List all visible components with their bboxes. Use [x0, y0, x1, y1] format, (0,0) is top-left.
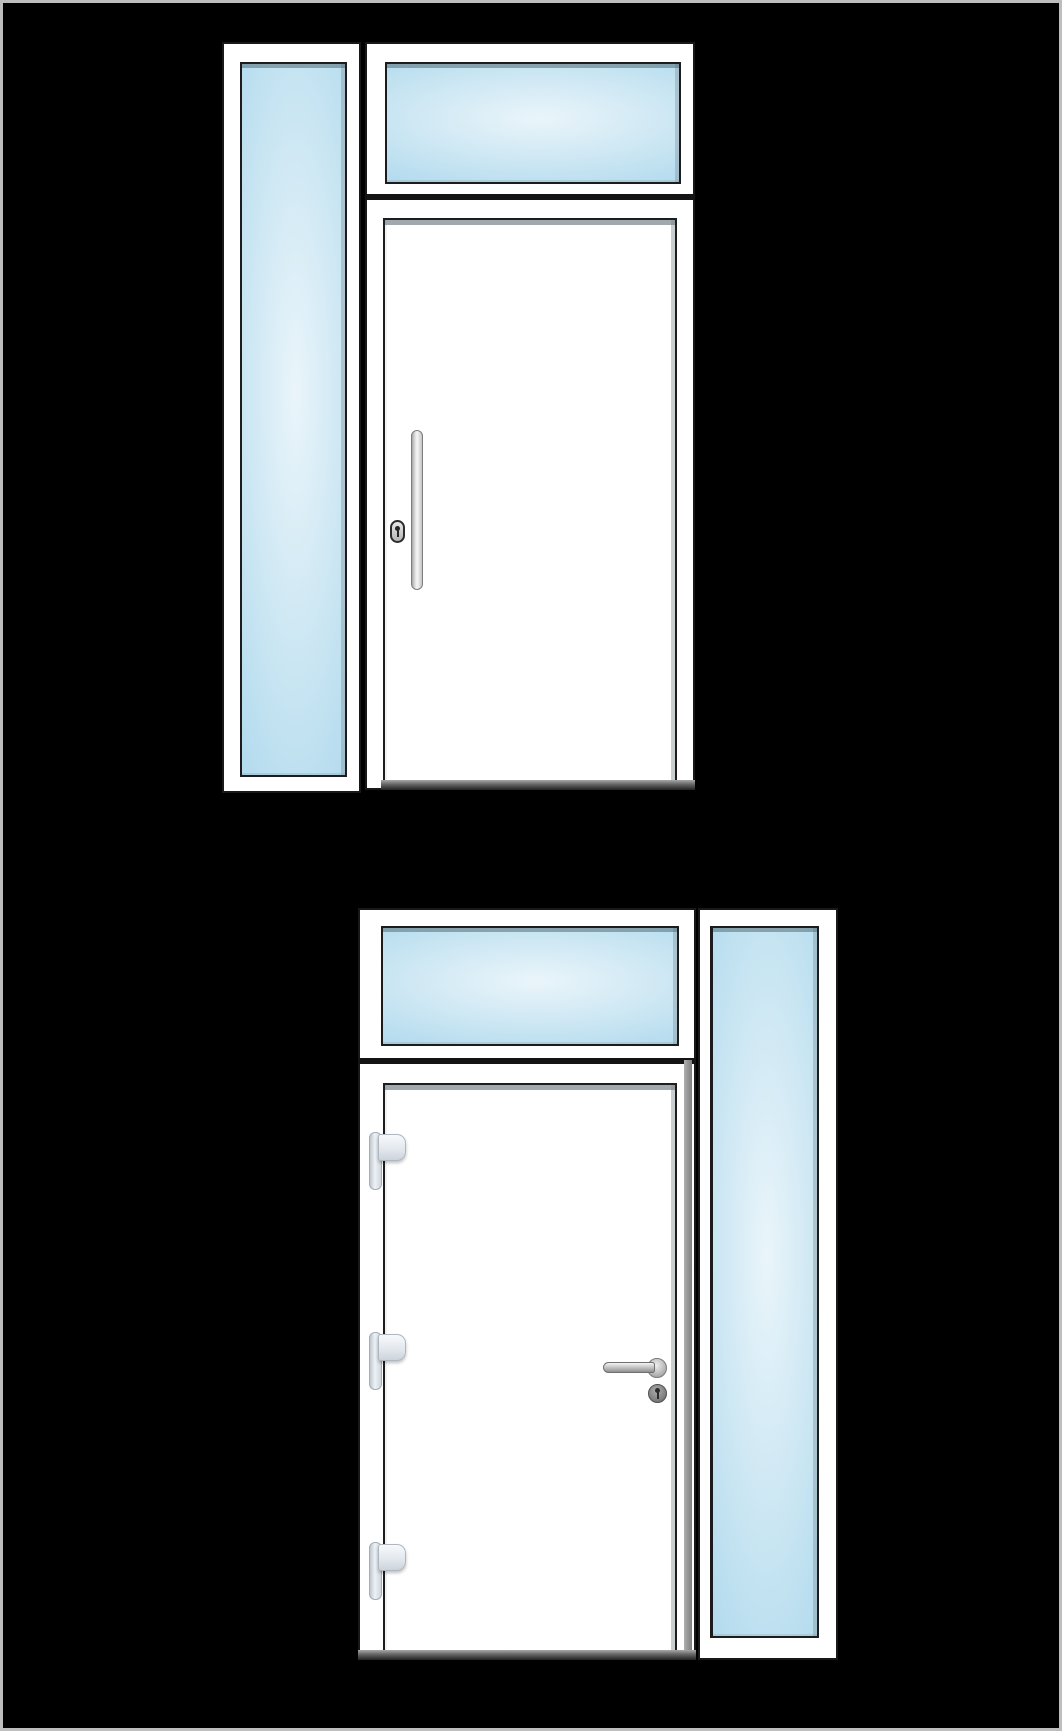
transom-glass	[385, 62, 681, 184]
door-transom-unit	[358, 908, 696, 1660]
lever-handle	[603, 1362, 655, 1373]
sidelight-glass	[710, 926, 819, 1638]
door-threshold	[358, 1650, 696, 1660]
transom-divider-bar	[365, 194, 695, 200]
hinge-bottom	[369, 1542, 406, 1604]
frame-joint-shadow	[684, 1060, 692, 1652]
keyhole-slot-icon	[397, 530, 399, 537]
door-leaf	[383, 1083, 677, 1654]
door-threshold	[381, 780, 695, 790]
oval-lock-cylinder	[390, 520, 405, 543]
sidelight-panel-right	[698, 908, 838, 1660]
door-assembly-left-sidelight[interactable]	[222, 42, 695, 793]
hinge-middle	[369, 1332, 406, 1394]
round-lock-cylinder	[648, 1384, 667, 1403]
hinge-plate	[378, 1134, 406, 1161]
illustration-canvas	[0, 0, 1062, 1731]
hinge-plate	[378, 1334, 406, 1361]
hinge-plate	[378, 1544, 406, 1571]
sidelight-glass	[240, 62, 347, 777]
pull-bar-handle	[411, 430, 423, 590]
sidelight-panel-left	[222, 42, 361, 793]
transom-divider-bar	[358, 1058, 696, 1064]
hinge-top	[369, 1132, 406, 1194]
keyhole-slot-icon	[657, 1392, 659, 1399]
door-transom-unit	[365, 42, 695, 790]
door-assembly-right-sidelight[interactable]	[358, 908, 838, 1660]
door-leaf	[383, 218, 677, 790]
transom-glass	[381, 926, 679, 1046]
